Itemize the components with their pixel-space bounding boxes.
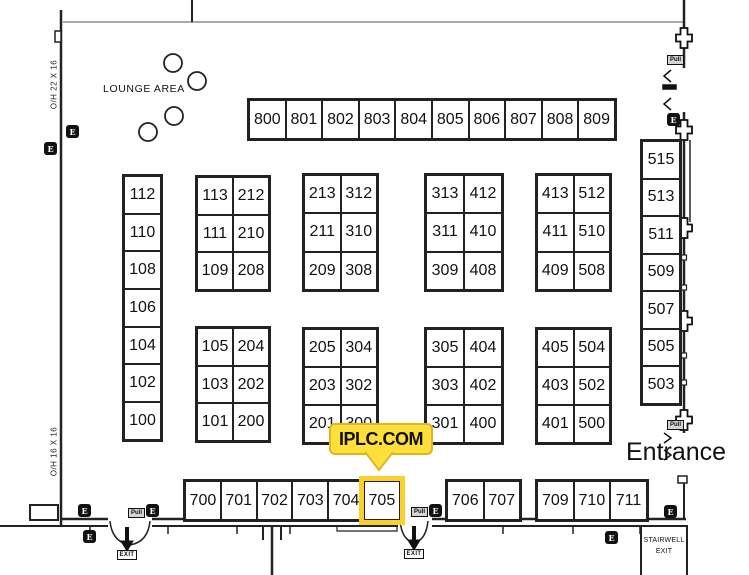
- stairwell-label-line2: EXIT: [642, 546, 686, 557]
- booth-510: 510: [574, 213, 611, 251]
- booth-row-700-right: 709710711: [535, 479, 649, 522]
- booth-412: 412: [464, 175, 502, 213]
- outlet-icon: E: [66, 125, 79, 138]
- booth-509: 509: [642, 254, 680, 292]
- booth-711: 711: [610, 481, 647, 520]
- booth-710: 710: [574, 481, 611, 520]
- booth-101: 101: [197, 403, 233, 441]
- booth-703: 703: [292, 481, 328, 520]
- entrance-label: Entrance: [626, 438, 726, 467]
- booth-403: 403: [537, 367, 574, 405]
- outlet-icon: E: [667, 113, 680, 126]
- booth-504: 504: [574, 329, 611, 367]
- wall-notch: [30, 505, 58, 520]
- booth-704: 704: [328, 481, 364, 520]
- booth-700: 700: [185, 481, 221, 520]
- booth-200: 200: [233, 403, 269, 441]
- booth-205: 205: [304, 329, 341, 367]
- booth-block-113-bottom: 105204103202101200: [195, 326, 271, 443]
- booth-213: 213: [304, 175, 341, 213]
- iplc-callout-label: IPLC.COM: [339, 429, 423, 450]
- booth-col-500: 515513511509507505503: [640, 139, 682, 406]
- booth-802: 802: [322, 100, 359, 139]
- booth-100: 100: [124, 402, 161, 440]
- floorplan-canvas: LOUNGE AREA Entrance O/H 22 X 16 O/H 16 …: [0, 0, 749, 575]
- booth-212: 212: [233, 177, 269, 215]
- booth-801: 801: [286, 100, 323, 139]
- booth-211: 211: [304, 213, 341, 251]
- booth-block-413-bottom: 405504403502401500: [535, 327, 612, 445]
- booth-block-313-bottom: 305404303402301400: [424, 327, 504, 445]
- booth-401: 401: [537, 405, 574, 443]
- top-wall: [63, 0, 684, 22]
- outlet-icon: E: [83, 530, 96, 543]
- booth-405: 405: [537, 329, 574, 367]
- booth-112: 112: [124, 176, 161, 214]
- booth-202: 202: [233, 366, 269, 404]
- pull-sign: Pull: [128, 508, 145, 518]
- booth-308: 308: [341, 252, 378, 290]
- booth-701: 701: [221, 481, 257, 520]
- booth-104: 104: [124, 327, 161, 365]
- exit-arrow-icons: [121, 526, 420, 551]
- booth-800: 800: [249, 100, 286, 139]
- lounge-area-label: LOUNGE AREA: [103, 83, 185, 95]
- booth-col-100: 112110108106104102100: [122, 174, 163, 442]
- outlet-icon: E: [78, 504, 91, 517]
- booth-block-113-top: 113212111210109208: [195, 175, 271, 292]
- booth-410: 410: [464, 213, 502, 251]
- booth-413: 413: [537, 175, 574, 213]
- booth-408: 408: [464, 252, 502, 290]
- callout-tail: [363, 452, 395, 472]
- booth-803: 803: [359, 100, 396, 139]
- outlet-icon: E: [429, 504, 442, 517]
- booth-109: 109: [197, 252, 233, 290]
- booth-108: 108: [124, 251, 161, 289]
- booth-807: 807: [505, 100, 542, 139]
- stairwell-label-line1: STAIRWELL: [642, 535, 686, 546]
- booth-707: 707: [484, 481, 521, 520]
- booth-400: 400: [464, 405, 502, 443]
- booth-503: 503: [642, 366, 680, 404]
- exit-sign: EXIT: [117, 550, 137, 560]
- overhead-door-label-bottom: O/H 16 X 16: [50, 412, 59, 492]
- booth-106: 106: [124, 289, 161, 327]
- outlet-icon: E: [664, 505, 677, 518]
- booth-706: 706: [447, 481, 484, 520]
- pull-sign: Pull: [667, 55, 684, 65]
- booth-309: 309: [426, 252, 464, 290]
- booth-409: 409: [537, 252, 574, 290]
- booth-512: 512: [574, 175, 611, 213]
- booth-302: 302: [341, 367, 378, 405]
- booth-305: 305: [426, 329, 464, 367]
- booth-507: 507: [642, 291, 680, 329]
- booth-502: 502: [574, 367, 611, 405]
- pull-sign: Pull: [411, 507, 428, 517]
- booth-row-700-left: 700701702703704705: [183, 479, 402, 522]
- booth-804: 804: [395, 100, 432, 139]
- booth-block-313-top: 313412311410309408: [424, 173, 504, 292]
- booth-808: 808: [542, 100, 579, 139]
- booth-310: 310: [341, 213, 378, 251]
- booth-block-413-top: 413512411510409508: [535, 173, 612, 292]
- booth-210: 210: [233, 215, 269, 253]
- booth-515: 515: [642, 141, 680, 179]
- pull-sign: Pull: [667, 420, 684, 430]
- booth-805: 805: [432, 100, 469, 139]
- booth-105: 105: [197, 328, 233, 366]
- booth-313: 313: [426, 175, 464, 213]
- booth-312: 312: [341, 175, 378, 213]
- booth-102: 102: [124, 364, 161, 402]
- outlet-icon: E: [605, 531, 618, 544]
- booth-208: 208: [233, 252, 269, 290]
- booth-113: 113: [197, 177, 233, 215]
- booth-303: 303: [426, 367, 464, 405]
- lounge-table-icons: [139, 54, 206, 141]
- outlet-icon: E: [146, 504, 159, 517]
- door-arcs: [110, 521, 428, 545]
- booth-411: 411: [537, 213, 574, 251]
- booth-402: 402: [464, 367, 502, 405]
- booth-304: 304: [341, 329, 378, 367]
- booth-404: 404: [464, 329, 502, 367]
- exit-sign: EXIT: [404, 549, 424, 559]
- booth-500: 500: [574, 405, 611, 443]
- overhead-door-label-top: O/H 22 X 16: [50, 45, 59, 125]
- booth-508: 508: [574, 252, 611, 290]
- booth-513: 513: [642, 179, 680, 217]
- booth-511: 511: [642, 216, 680, 254]
- booth-705: 705: [364, 481, 400, 520]
- booth-809: 809: [578, 100, 615, 139]
- booth-203: 203: [304, 367, 341, 405]
- booth-103: 103: [197, 366, 233, 404]
- iplc-callout[interactable]: IPLC.COM: [329, 423, 433, 455]
- booth-block-213-top: 213312211310209308: [302, 173, 379, 292]
- stairwell-exit-box: STAIRWELL EXIT: [640, 525, 688, 575]
- booth-209: 209: [304, 252, 341, 290]
- outlet-icon: E: [44, 142, 57, 155]
- booth-702: 702: [257, 481, 293, 520]
- booth-505: 505: [642, 329, 680, 367]
- booth-row-700-mid: 706707: [445, 479, 522, 522]
- booth-204: 204: [233, 328, 269, 366]
- booth-110: 110: [124, 214, 161, 252]
- booth-row-800: 800801802803804805806807808809: [247, 98, 617, 141]
- entrance-flag-icon: [678, 476, 687, 520]
- booth-111: 111: [197, 215, 233, 253]
- booth-311: 311: [426, 213, 464, 251]
- booth-806: 806: [469, 100, 506, 139]
- booth-709: 709: [537, 481, 574, 520]
